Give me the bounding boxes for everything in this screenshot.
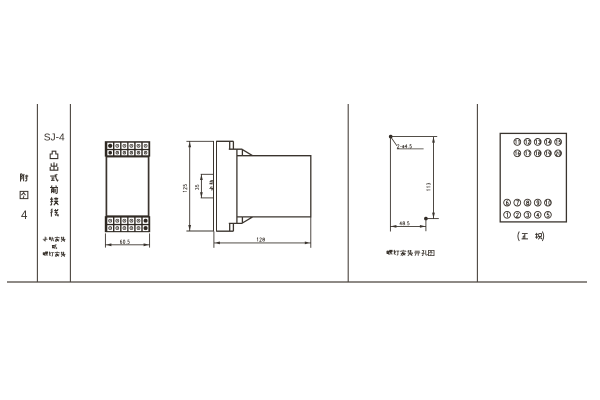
svg-text:4: 4 <box>21 210 28 222</box>
svg-text:SJ-4: SJ-4 <box>44 132 65 143</box>
